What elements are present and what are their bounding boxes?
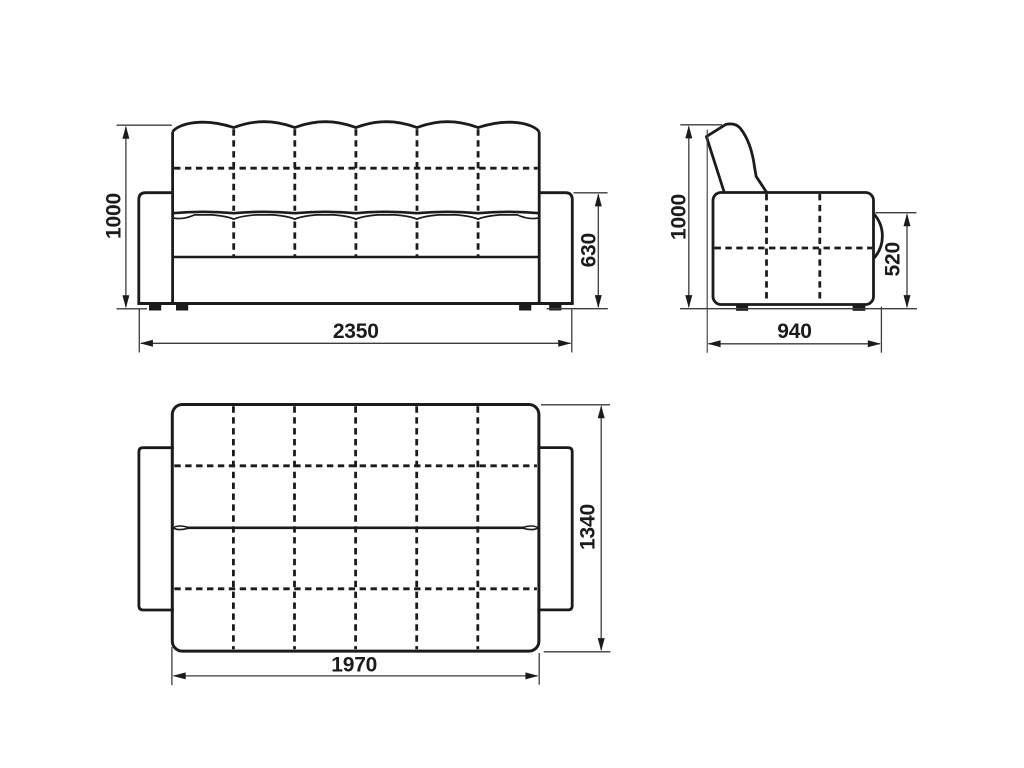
svg-text:1000: 1000	[667, 194, 690, 240]
svg-text:1340: 1340	[576, 504, 599, 550]
svg-text:520: 520	[882, 242, 905, 276]
svg-text:1000: 1000	[102, 193, 125, 239]
svg-text:1970: 1970	[331, 653, 377, 676]
svg-text:630: 630	[578, 233, 601, 267]
svg-text:2350: 2350	[333, 320, 379, 343]
svg-text:940: 940	[777, 320, 811, 343]
